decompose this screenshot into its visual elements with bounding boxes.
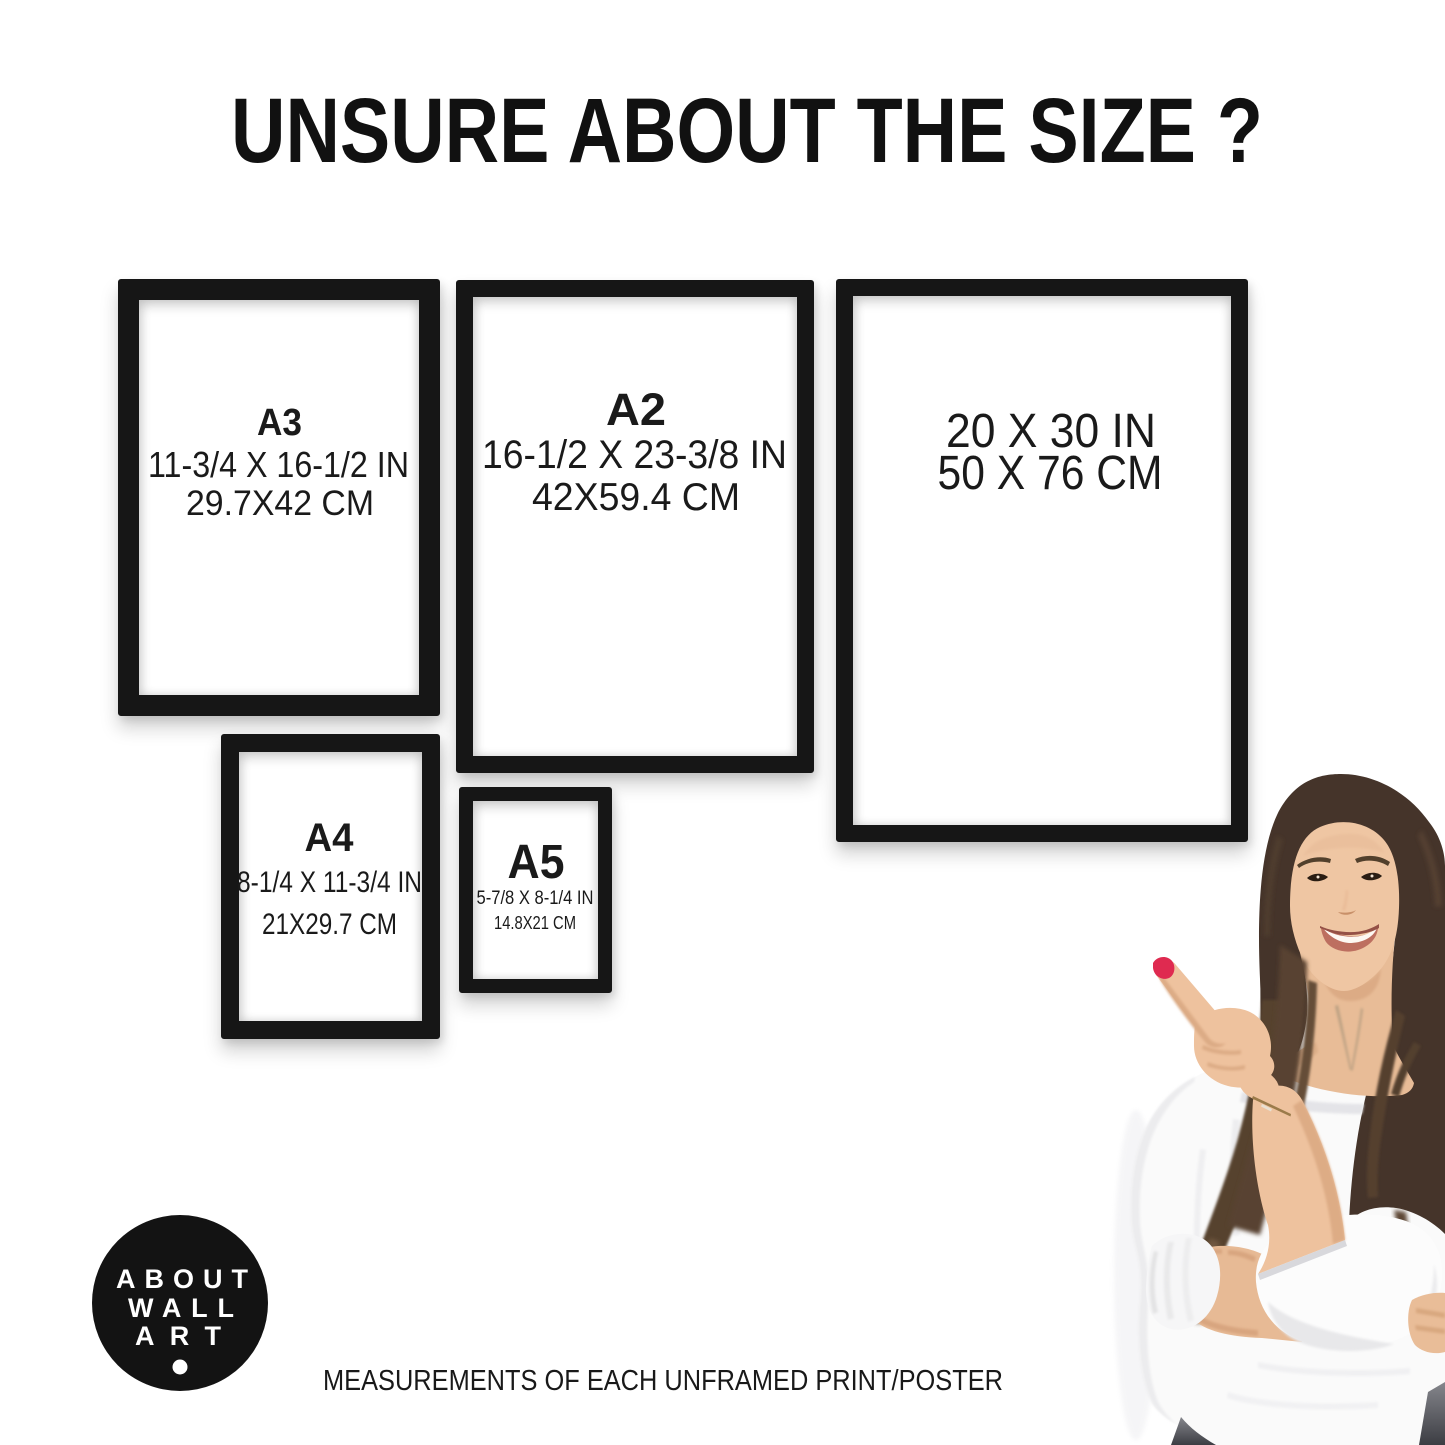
svg-text:50 X 76 CM: 50 X 76 CM [938,447,1163,500]
svg-text:ART: ART [135,1321,222,1351]
svg-text:A4: A4 [305,816,355,860]
svg-text:A3: A3 [257,402,302,444]
svg-text:UNSURE ABOUT THE SIZE ?: UNSURE ABOUT THE SIZE ? [231,80,1263,182]
svg-text:11-3/4 X 16-1/2 IN: 11-3/4 X 16-1/2 IN [148,444,409,485]
svg-text:16-1/2 X 23-3/8 IN: 16-1/2 X 23-3/8 IN [482,433,787,477]
svg-text:8-1/4 X 11-3/4 IN: 8-1/4 X 11-3/4 IN [237,866,422,899]
svg-text:42X59.4 CM: 42X59.4 CM [532,476,740,519]
svg-text:WALL: WALL [128,1293,234,1323]
svg-text:29.7X42 CM: 29.7X42 CM [186,484,374,523]
svg-text:A5: A5 [508,836,565,889]
svg-text:5-7/8 X 8-1/4 IN: 5-7/8 X 8-1/4 IN [477,888,594,909]
svg-text:MEASUREMENTS OF EACH UNFRAMED: MEASUREMENTS OF EACH UNFRAMED PRINT/POST… [323,1365,1003,1397]
svg-text:14.8X21 CM: 14.8X21 CM [494,912,576,933]
svg-text:21X29.7 CM: 21X29.7 CM [262,908,397,941]
svg-text:A2: A2 [606,384,666,435]
